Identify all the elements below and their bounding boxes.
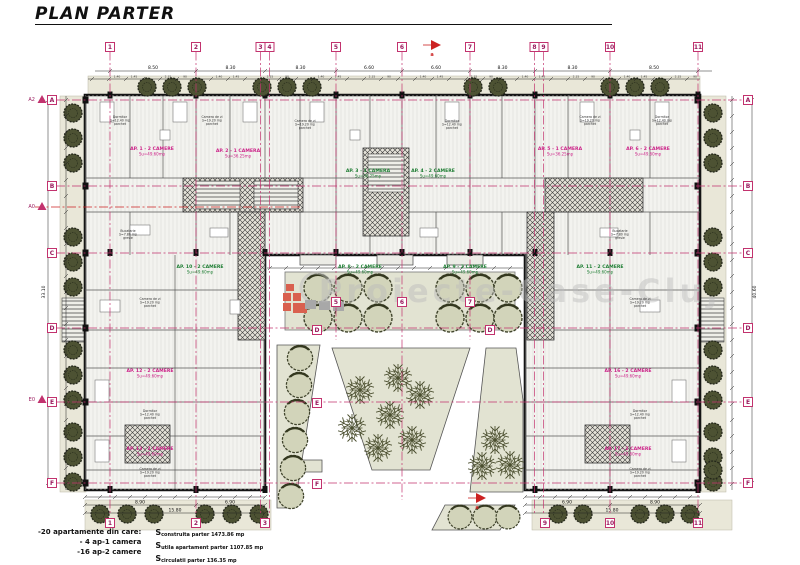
grid-bubble: F <box>313 480 322 489</box>
dim-label: 1.45 <box>437 75 444 79</box>
grid-bubble-label: E <box>50 399 54 406</box>
grid-bubble: 1 <box>106 43 115 52</box>
apartment-area-label: Su=49.60mp <box>187 270 214 275</box>
tree-icon <box>253 78 271 96</box>
grid-bubble-label: A <box>50 97 55 104</box>
grid-bubble-label: E <box>746 399 750 406</box>
grid-bubble-label: 2 <box>194 44 198 51</box>
tree-icon <box>64 448 82 466</box>
tree-icon <box>574 505 592 523</box>
apartment-area-label: Su=49.60mp <box>347 270 374 275</box>
legend-area-circulation: Scirculatii parter 136.35 mp <box>155 553 263 565</box>
dim-label: 1.40 <box>318 75 325 79</box>
apartment-area-label: Su=49.60mp <box>452 270 479 275</box>
dim-label: 6.60 <box>364 65 374 71</box>
dim-label: 8.30 <box>497 65 507 71</box>
grid-bubble: A <box>48 96 57 105</box>
dim-label: 2.15 <box>471 75 478 79</box>
grid-bubble-label: F <box>315 481 319 488</box>
floor-plan-drawing: Proiecte-Case-Cluj 8.508.308.306.606.608… <box>0 0 800 565</box>
tree-icon <box>163 78 181 96</box>
dim-label: 8.30 <box>225 65 235 71</box>
grid-bubble-label: 5 <box>334 44 338 51</box>
dim-label: 2.15 <box>267 75 274 79</box>
grid-bubble-label: B <box>50 183 55 190</box>
grid-bubble-label: 7 <box>468 44 472 51</box>
grid-bubble: D <box>744 324 753 333</box>
legend-apartments: -20 apartamente din care: - 4 ap-1 camer… <box>38 527 141 565</box>
grid-bubble-label: B <box>746 183 751 190</box>
tree-icon <box>64 341 82 359</box>
grid-bubble-label: 4 <box>267 44 271 51</box>
section-triangle-icon <box>38 95 47 103</box>
tree-icon <box>64 473 82 491</box>
dim-label: 2.15 <box>573 75 580 79</box>
dim-label: 1.40 <box>114 75 121 79</box>
apartment-area-label: Su=49.60mp <box>137 452 164 457</box>
dim-label: 2.15 <box>369 75 376 79</box>
grid-bubble: 11 <box>694 43 703 52</box>
grid-bubble: B <box>744 182 753 191</box>
grid-bubble: 5 <box>332 43 341 52</box>
tree-icon <box>704 391 722 409</box>
grid-bubble: 6 <box>398 298 407 307</box>
dim-label: 90 <box>285 75 289 79</box>
column-marker <box>533 486 538 493</box>
grid-bubble-label: D <box>315 327 320 334</box>
dim-label: 90 <box>387 75 391 79</box>
grid-bubble-label: 10 <box>606 44 614 51</box>
legend-line-2: - 4 ap-1 camera <box>38 537 141 547</box>
bush-icon <box>282 427 307 452</box>
grid-bubble: 7 <box>466 43 475 52</box>
legend: -20 apartamente din care: - 4 ap-1 camer… <box>38 527 263 565</box>
apartment-area-label: Su=36.25mp <box>547 152 574 157</box>
grid-bubble-label: 3 <box>258 44 262 51</box>
dim-label: 90 <box>183 75 187 79</box>
dim-label: 1.40 <box>216 75 223 79</box>
tree-icon <box>704 228 722 246</box>
tree-icon <box>64 278 82 296</box>
apartment-area-label: Su=49.60mp <box>587 270 614 275</box>
tree-icon <box>303 78 321 96</box>
grid-bubble: 3 <box>256 43 265 52</box>
grid-bubble: 7 <box>466 298 475 307</box>
grid-bubble: E <box>313 399 322 408</box>
legend-line-3: -16 ap-2 camere <box>38 547 141 557</box>
grid-bubble: 6 <box>398 43 407 52</box>
grid-bubble: A <box>744 96 753 105</box>
tree-icon <box>549 505 567 523</box>
grid-bubble: 10 <box>606 43 615 52</box>
tree-icon <box>64 129 82 147</box>
apartment-area-label: Su=49.60mp <box>139 152 166 157</box>
grid-bubble: D <box>313 326 322 335</box>
dim-label: 6.90 <box>225 500 235 506</box>
grid-bubble-label: C <box>50 250 55 257</box>
grid-bubble-label: 10 <box>606 520 614 527</box>
tree-icon <box>118 505 136 523</box>
dim-label: 40.60 <box>752 285 758 298</box>
apartment-area-label: Su=36.25mp <box>225 154 252 159</box>
grid-bubble-label: 1 <box>108 44 112 51</box>
column-marker <box>533 92 538 99</box>
dim-label: 8.30 <box>567 65 577 71</box>
apartment-area-label: Su=36.25mp <box>355 174 382 179</box>
grid-bubble-label: 3 <box>263 520 267 527</box>
watermark: Proiecte-Case-Cluj <box>283 272 721 313</box>
tree-icon <box>626 78 644 96</box>
grid-bubble-label: 9 <box>541 44 545 51</box>
legend-line-1: -20 apartamente din care: <box>38 527 141 537</box>
grid-bubble: 11 <box>694 519 703 528</box>
tree-icon <box>704 104 722 122</box>
section-arrow-icon <box>476 493 486 503</box>
section-marker-label: E0 <box>29 397 35 403</box>
tree-icon <box>704 423 722 441</box>
legend-areas: Sconstruita parter 1473.86 mp Sutila apa… <box>155 527 263 565</box>
tree-icon <box>704 154 722 172</box>
grid-bubble-label: E <box>315 400 319 407</box>
bush-icon <box>448 505 472 529</box>
apartment-area-label: Su=49.60mp <box>137 374 164 379</box>
grid-bubble-label: C <box>746 250 751 257</box>
floor-plan-page: PLAN PARTER <box>0 0 800 565</box>
grid-bubble: F <box>48 479 57 488</box>
apartment-area-label: Su=49.60mp <box>615 374 642 379</box>
grid-bubble: C <box>744 249 753 258</box>
grid-bubble: 8 <box>530 43 539 52</box>
dim-label: 90 <box>693 75 697 79</box>
tree-icon <box>631 505 649 523</box>
tree-icon <box>138 78 156 96</box>
bush-icon <box>496 505 520 529</box>
grid-bubble: D <box>48 324 57 333</box>
dim-label: 1.45 <box>233 75 240 79</box>
grid-bubble-label: 9 <box>543 520 547 527</box>
column-marker <box>263 486 268 493</box>
section-triangle-icon <box>38 395 47 403</box>
grid-bubble-label: 7 <box>468 299 472 306</box>
grid-bubble-label: 5 <box>334 299 338 306</box>
tree-icon <box>704 253 722 271</box>
grid-bubble: 5 <box>332 298 341 307</box>
dim-label: 8.90 <box>650 500 660 506</box>
grid-bubble-label: 8 <box>532 44 536 51</box>
tree-icon <box>278 78 296 96</box>
tree-icon <box>64 366 82 384</box>
legend-area-usable: Sutila apartament parter 1107.85 mp <box>155 540 263 553</box>
tree-icon <box>651 78 669 96</box>
tree-icon <box>464 78 482 96</box>
apartment-area-label: Su=49.60mp <box>420 174 447 179</box>
dim-label: 15.80 <box>169 508 182 514</box>
section-marker-label: A0 <box>28 204 35 210</box>
grid-bubble-label: 6 <box>400 299 404 306</box>
column-marker <box>533 249 538 256</box>
grid-bubble: F <box>744 479 753 488</box>
watermark-text: Proiecte-Case-Cluj <box>319 272 721 310</box>
grid-bubble: 9 <box>539 43 548 52</box>
bush-icon <box>280 455 305 480</box>
apartment-area-label: Su=49.60mp <box>615 452 642 457</box>
legend-area-built: Sconstruita parter 1473.86 mp <box>155 527 263 540</box>
section-triangle-icon <box>38 202 47 210</box>
dim-label: 8.50 <box>148 65 158 71</box>
section-arrow-icon <box>431 40 441 50</box>
tree-icon <box>704 341 722 359</box>
dim-label: 1.40 <box>624 75 631 79</box>
dim-label: 8.30 <box>295 65 305 71</box>
dim-label: 90 <box>591 75 595 79</box>
tree-icon <box>64 104 82 122</box>
section-arrow-label: a <box>430 52 433 58</box>
tree-icon <box>64 391 82 409</box>
grid-bubble: 9 <box>541 519 550 528</box>
dim-label: 33.10 <box>41 285 47 298</box>
tree-icon <box>704 129 722 147</box>
grid-bubble-label: F <box>50 480 54 487</box>
tree-icon <box>704 366 722 384</box>
grid-bubble: E <box>48 398 57 407</box>
grid-bubble: 2 <box>192 43 201 52</box>
grid-bubble: 4 <box>265 43 274 52</box>
section-arrow-label: a <box>475 505 478 511</box>
grid-bubble: C <box>48 249 57 258</box>
tree-icon <box>64 253 82 271</box>
grid-bubble: 10 <box>606 519 615 528</box>
bush-icon <box>286 372 311 397</box>
dim-label: 1.45 <box>131 75 138 79</box>
dim-label: 1.40 <box>420 75 427 79</box>
grid-bubble-label: 6 <box>400 44 404 51</box>
grid-bubble-label: D <box>50 325 55 332</box>
grid-bubble: B <box>48 182 57 191</box>
tree-icon <box>704 278 722 296</box>
dim-label: 1.45 <box>539 75 546 79</box>
grid-bubble-label: F <box>746 480 750 487</box>
grid-bubble: D <box>486 326 495 335</box>
dim-label: 6.90 <box>562 500 572 506</box>
tree-icon <box>188 78 206 96</box>
bush-icon <box>278 483 303 508</box>
dim-label: 6.60 <box>431 65 441 71</box>
grid-bubble-label: 11 <box>694 44 702 51</box>
dim-label: 8.90 <box>135 500 145 506</box>
dim-label: 2.15 <box>675 75 682 79</box>
grid-bubble: E <box>744 398 753 407</box>
dim-label: 1.45 <box>641 75 648 79</box>
grid-bubble-label: A <box>746 97 751 104</box>
dim-label: 90 <box>489 75 493 79</box>
tree-icon <box>704 461 722 479</box>
tree-icon <box>145 505 163 523</box>
tree-icon <box>64 423 82 441</box>
terraces <box>300 255 483 265</box>
dim-label: 15.80 <box>606 508 619 514</box>
grid-bubble-label: D <box>488 327 493 334</box>
dim-label: 8.50 <box>649 65 659 71</box>
dim-label: 2.15 <box>165 75 172 79</box>
bush-icon <box>284 399 309 424</box>
apartment-area-label: Su=49.60mp <box>635 152 662 157</box>
column-marker <box>263 249 268 256</box>
dim-label: 1.40 <box>522 75 529 79</box>
grid-bubble-label: 11 <box>694 520 702 527</box>
tree-icon <box>656 505 674 523</box>
section-marker-label: A2 <box>28 97 35 103</box>
grid-bubble-label: D <box>746 325 751 332</box>
tree-icon <box>223 505 241 523</box>
bush-icon <box>287 345 312 370</box>
